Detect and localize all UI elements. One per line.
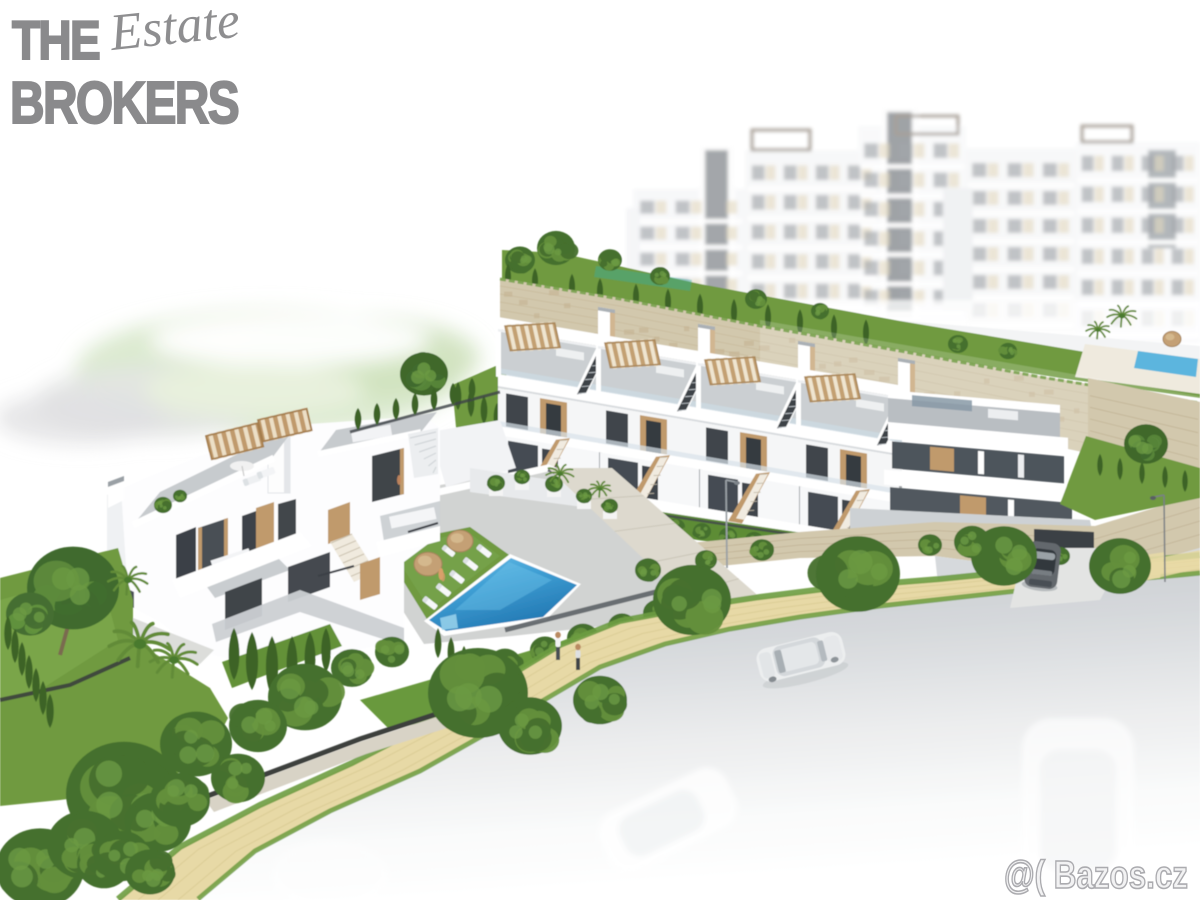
svg-text:BROKERS: BROKERS [10,70,239,136]
svg-text:@( Bazos.cz: @( Bazos.cz [1004,854,1188,897]
svg-text:THE: THE [12,9,99,71]
